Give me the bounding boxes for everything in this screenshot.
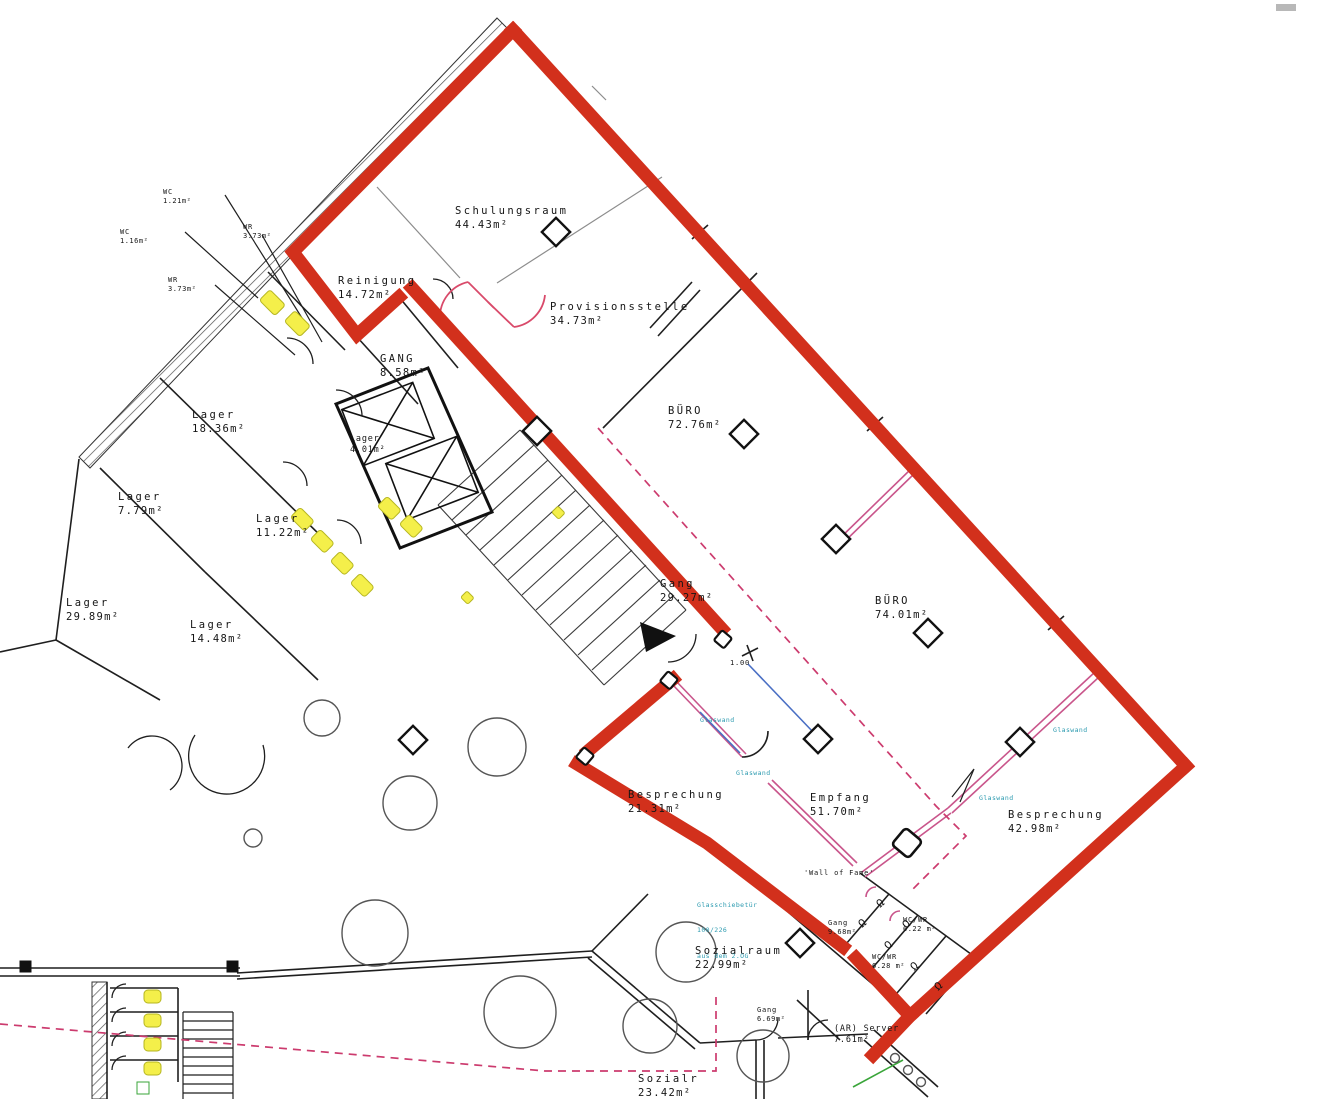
room-label-empfang: Empfang51.70m² xyxy=(810,765,871,820)
room-label-gang-968: Gang9.68m² xyxy=(828,901,856,937)
door-width-annotation: 1.00 xyxy=(730,641,750,668)
room-label-wcwr-628: WC/WR6.28 m² xyxy=(872,935,905,971)
room-label-buero-7401: BÜRO74.01m² xyxy=(875,568,928,623)
room-label-wr-2: WR3.73m² xyxy=(168,258,196,294)
paper-background xyxy=(0,0,1318,1099)
room-label-besprechung-2131: Besprechung21.31m² xyxy=(628,762,724,817)
room-label-gang-858: GANG8.58m² xyxy=(380,326,426,381)
room-label-lager-1122: Lager11.22m² xyxy=(256,486,309,541)
room-label-lager-2989: Lager29.89m² xyxy=(66,570,119,625)
room-label-lager-1836: Lager18.36m² xyxy=(192,382,245,437)
room-label-gang-669: Gang6.69m² xyxy=(757,988,785,1024)
glass-wall-annotation-1: Glaswand xyxy=(700,699,735,724)
room-label-teekueche: Teek. xyxy=(772,1080,816,1099)
room-label-schulungsraum: Schulungsraum44.43m² xyxy=(455,178,568,233)
room-label-wcwr-622: WC/WR6.22 m² xyxy=(903,898,936,934)
room-label-lager-1448: Lager14.48m² xyxy=(190,592,243,647)
room-label-sozialr: Sozialr23.42m² xyxy=(638,1046,699,1099)
room-label-lager-401: Lager4.01m² xyxy=(350,412,386,456)
room-label-lager-779: Lager7.79m² xyxy=(118,464,164,519)
room-label-buero-7276: BÜRO72.76m² xyxy=(668,378,721,433)
room-label-server: (AR) Server7.61m² xyxy=(834,1002,899,1046)
glass-wall-annotation-3: Glaswand xyxy=(1053,709,1088,734)
room-label-gang-2927: Gang29.27m² xyxy=(660,551,713,606)
floor-plan-drawing: Ω Ω Ω Ω Ω Ω xyxy=(0,0,1318,1099)
wall-of-fame-annotation: 'Wall of Fame' xyxy=(804,851,874,878)
room-label-wr-1: WR3.73m² xyxy=(243,205,271,241)
glass-wall-annotation-2: Glaswand xyxy=(736,752,771,777)
room-label-besprechung-4298: Besprechung42.98m² xyxy=(1008,782,1104,837)
floor-plan-page: Ω Ω Ω Ω Ω Ω WC1.21m² WR3.73m² WC1.16m² W… xyxy=(0,0,1318,1099)
room-label-wc-2: WC1.16m² xyxy=(120,210,148,246)
glass-wall-annotation-4: Glaswand xyxy=(979,777,1014,802)
glass-sliding-door-annotation: Glasschiebetür 100/226 aus dem 2.OG xyxy=(697,884,757,960)
room-label-provisionsstelle: Provisionsstelle34.73m² xyxy=(550,274,690,329)
room-label-reinigung: Reinigung14.72m² xyxy=(338,248,417,303)
room-label-wc-1: WC1.21m² xyxy=(163,170,191,206)
